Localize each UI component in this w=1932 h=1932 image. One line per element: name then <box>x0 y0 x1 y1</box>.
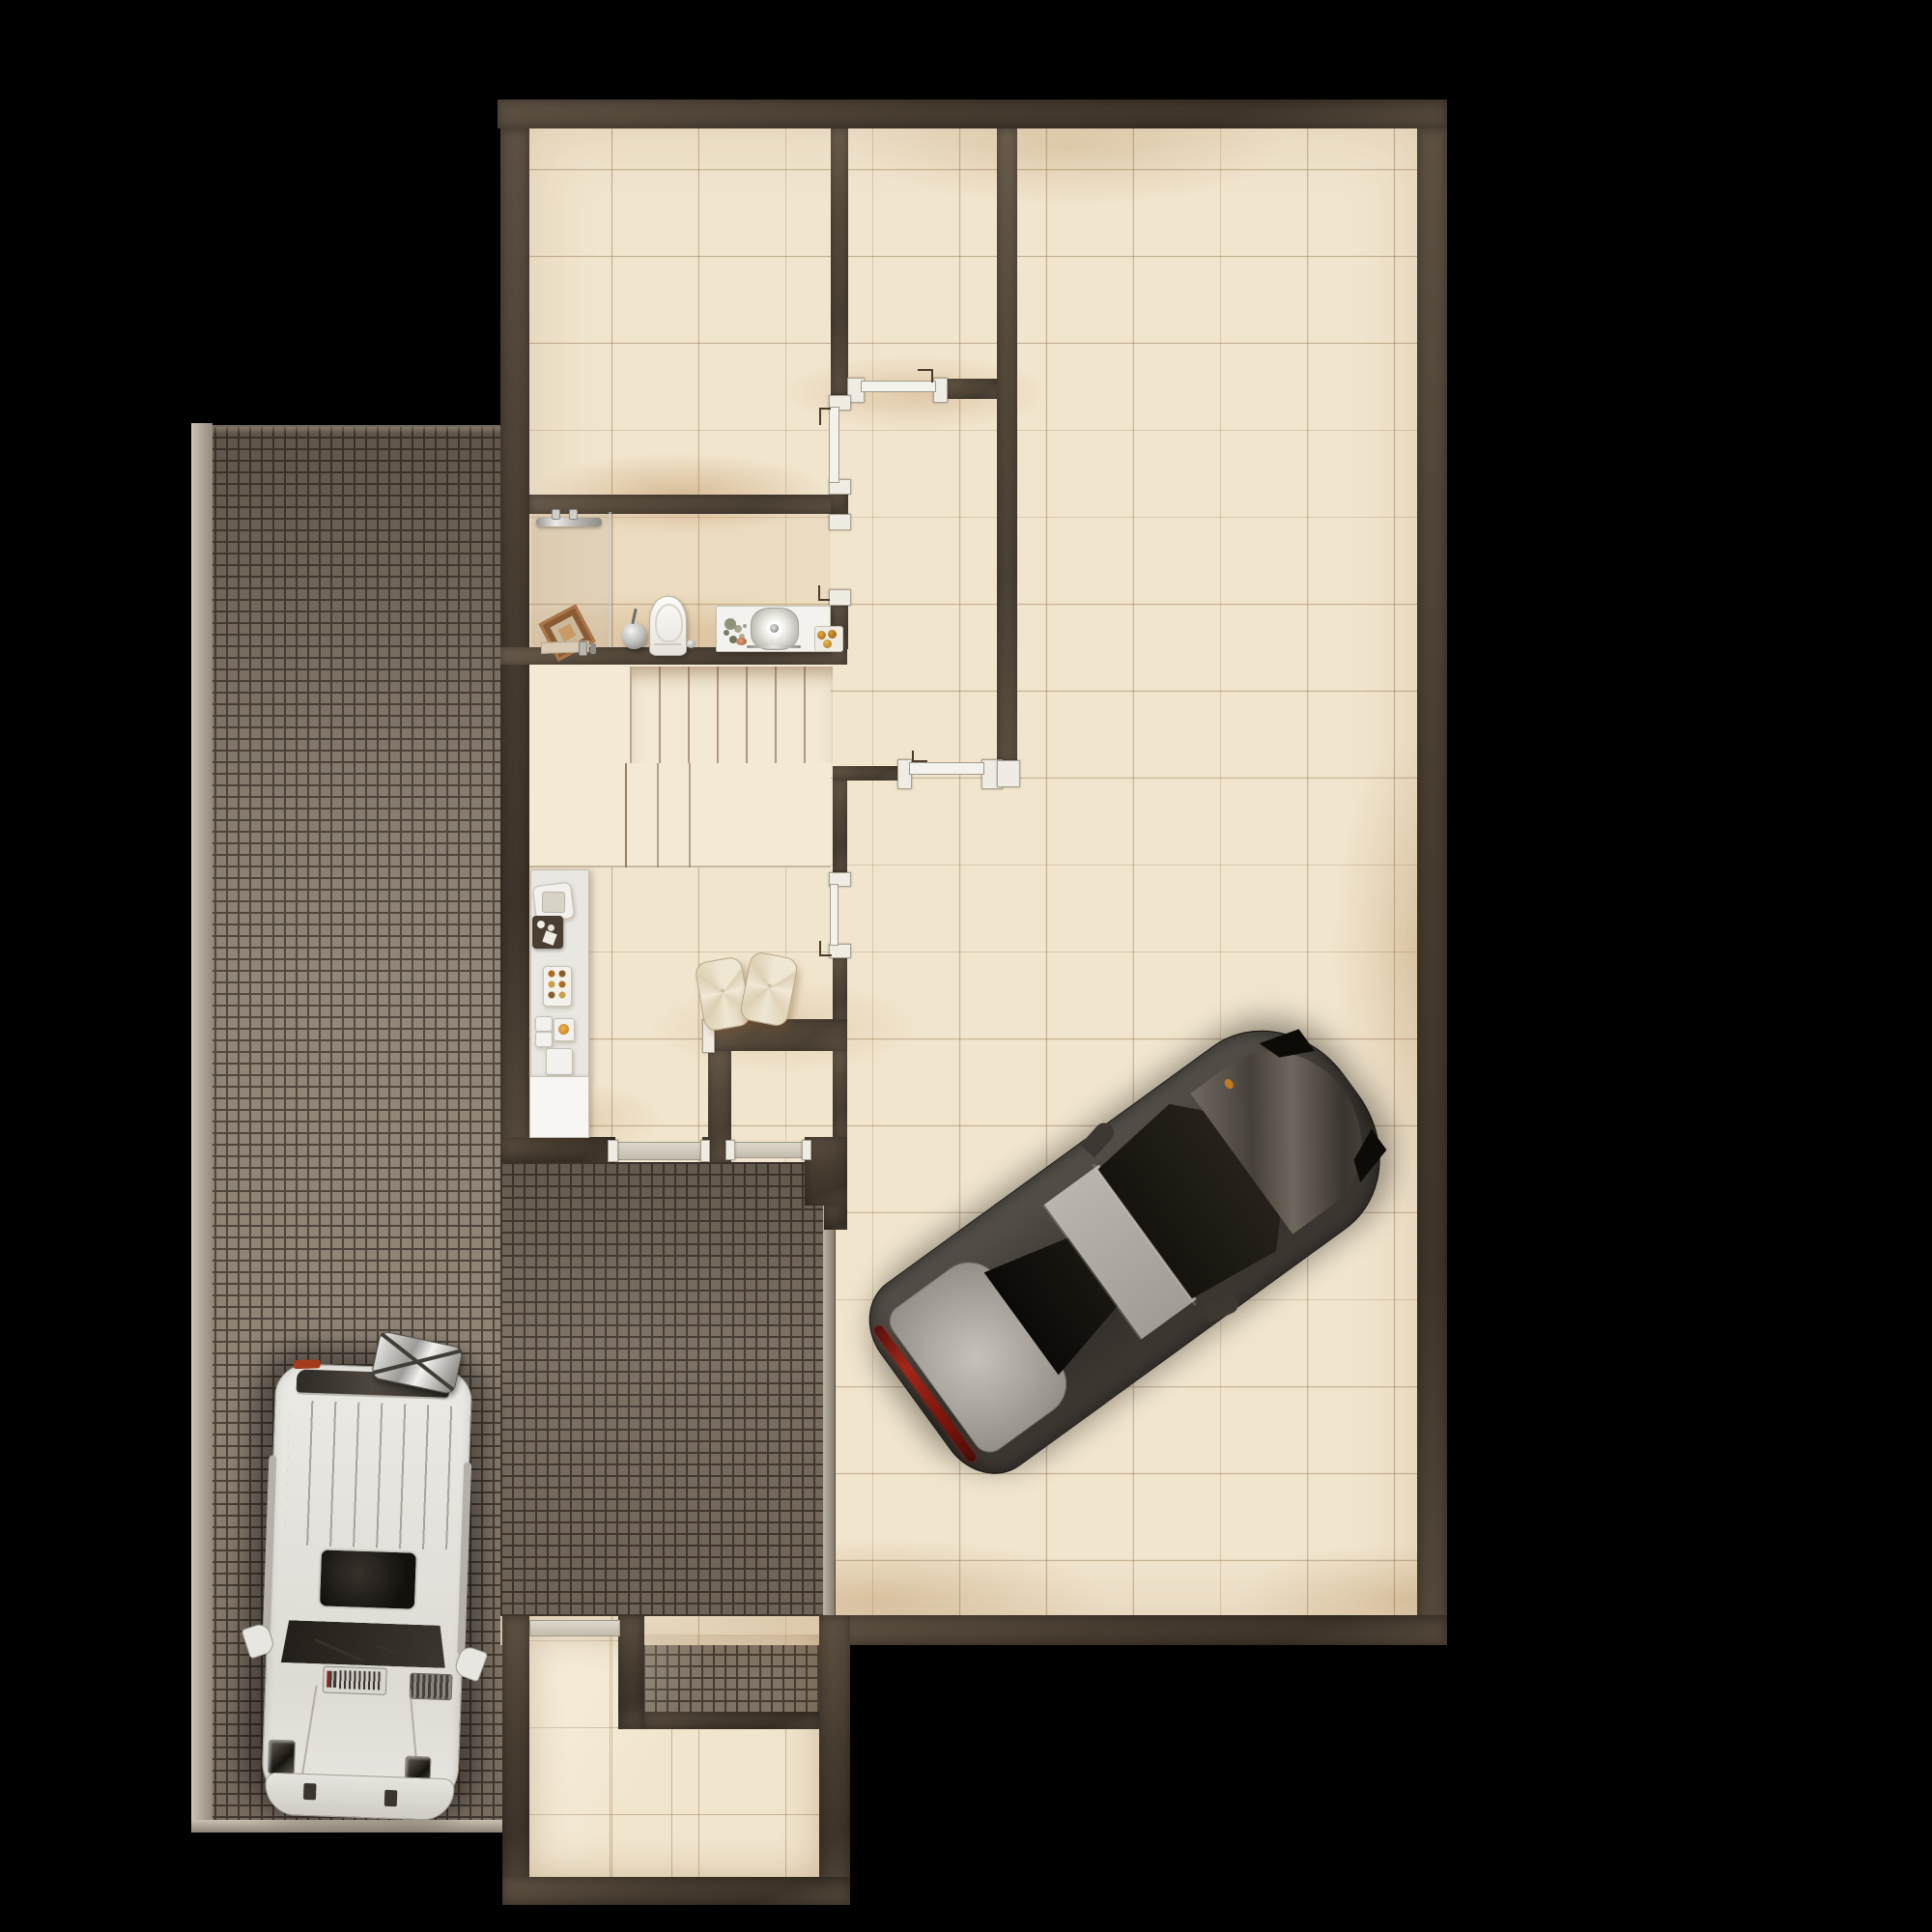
wall-garage-west-a <box>833 781 847 872</box>
stairs-bottom-edge <box>529 866 831 867</box>
jar-tray <box>543 966 572 1007</box>
toilet-base-line <box>654 643 681 645</box>
stairs-upper-flight <box>630 667 833 763</box>
cooktop-knob-2 <box>535 1032 553 1047</box>
driveway-curb-bottom <box>191 1820 502 1833</box>
driveway-cutin-shade <box>500 1162 824 1616</box>
wall-corridor-bottom <box>944 379 1000 399</box>
suv-taillight-left <box>294 1359 321 1369</box>
driveway-top-edge <box>213 425 500 434</box>
wall-storage-bottom <box>502 1877 850 1905</box>
wall-storage-top <box>644 1712 819 1729</box>
kitchen-cabinet <box>529 1076 589 1138</box>
sill-cap-2 <box>700 1140 710 1162</box>
vent-hatch <box>339 1670 383 1690</box>
storage-room-door-sill <box>529 1620 620 1636</box>
wall-garage-west-b <box>833 956 847 1021</box>
suv-roof-ribs <box>285 1400 454 1550</box>
sill-cap-4 <box>802 1140 811 1160</box>
garage-side-door-leaf <box>830 884 838 946</box>
wall-exterior-top <box>497 99 1447 128</box>
cooktop-burner <box>554 1018 575 1041</box>
board-item <box>542 892 565 913</box>
corridor-door-pivot-mark <box>918 369 933 383</box>
suv-bumper-mark-right <box>384 1790 398 1806</box>
suv-front-bumper <box>264 1772 454 1821</box>
garage-side-door-frame-bottom <box>829 944 851 958</box>
copper-dish <box>736 638 747 645</box>
white-suv <box>251 1339 482 1815</box>
vanity-tray <box>814 626 843 652</box>
bathroom-door-frame-top <box>829 514 851 530</box>
room-a-door-pivot-mark <box>819 408 831 425</box>
hall-door-leaf <box>909 762 984 775</box>
decor-vase <box>622 622 646 649</box>
toiletry-bottle-2 <box>590 643 596 654</box>
sill-cap-3 <box>725 1140 735 1160</box>
wall-exterior-right <box>1417 128 1447 1645</box>
garage-curb-track <box>823 1162 836 1616</box>
wall-storage-right <box>819 1616 850 1905</box>
wall-garage-west-c <box>833 1051 847 1137</box>
toilet <box>649 596 687 656</box>
kitchen-exit-sill-left <box>615 1142 704 1160</box>
shower-glass-partition <box>609 512 611 647</box>
corridor-wall-end-frame <box>997 760 1020 787</box>
amber-jar-1 <box>817 631 826 639</box>
bathroom-door-pivot-mark <box>818 585 830 601</box>
storage-room-light-wedge <box>529 1634 819 1877</box>
wall-exterior-left <box>500 128 529 1162</box>
amber-jar-3 <box>823 639 832 648</box>
wall-hall-bottom <box>833 766 900 781</box>
garage-side-door-pivot-mark <box>819 941 832 956</box>
vanity-plant <box>724 618 736 630</box>
floor-plan-scene <box>0 0 1932 1932</box>
dark-serving-tray <box>532 916 563 949</box>
bathroom-door-frame-bottom <box>829 589 851 606</box>
amber-jar-2 <box>828 630 837 639</box>
driveway-curb-left <box>191 423 213 1833</box>
egg-2 <box>548 924 554 931</box>
egg-1 <box>537 921 545 928</box>
burner-flame-dot <box>558 1024 569 1035</box>
stairs-lower-steps <box>625 763 691 867</box>
toilet-seat-rim <box>655 604 683 642</box>
wall-kitchen-corner-stub <box>824 1206 847 1230</box>
wall-corridor-right <box>997 128 1017 763</box>
suv-headlight-left <box>268 1740 296 1776</box>
suv-hood-vent-left <box>323 1666 387 1695</box>
toiletry-bottle-1 <box>579 641 587 656</box>
wall-storage-block <box>618 1616 644 1729</box>
sink-drain <box>770 624 779 633</box>
wall-garage-bottom <box>819 1615 1447 1645</box>
wall-storage-left <box>502 1616 529 1905</box>
towel-hook-1 <box>552 509 560 520</box>
napkin <box>542 930 556 945</box>
towel-hook-2 <box>569 509 578 520</box>
kitchen-jar <box>546 1048 573 1075</box>
wall-kitchen-bottom-left <box>500 1137 615 1162</box>
wall-east-room-a <box>831 128 848 395</box>
suv-hood-vent-right <box>410 1673 453 1701</box>
suv-bumper-mark-left <box>303 1783 317 1800</box>
sill-cap-1 <box>608 1140 618 1162</box>
toilet-flush-knob <box>687 639 696 648</box>
sink-faucet-lever <box>747 645 801 648</box>
roof-box-strap-2 <box>373 1349 462 1375</box>
vent-color-stripes <box>327 1671 337 1688</box>
suv-sunroof <box>318 1548 418 1611</box>
vestibule-exit-sill <box>731 1142 807 1158</box>
hall-door-pivot-mark <box>912 751 927 762</box>
cooktop-knob-1 <box>535 1016 553 1032</box>
